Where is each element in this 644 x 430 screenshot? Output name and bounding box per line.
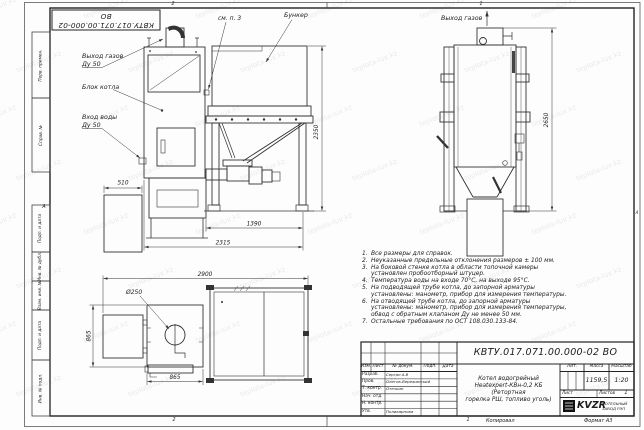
dim-865-left: 865 (87, 330, 93, 341)
sheet-label: Лист (562, 390, 573, 398)
col-header-data: Дата (439, 364, 457, 372)
signature-name (386, 401, 422, 408)
signature-name: Отечкин (386, 386, 422, 393)
dim-865-bottom: 865 (169, 375, 180, 381)
signature-name (386, 394, 422, 401)
gas-outlet-du-label: Ду 50 (81, 61, 101, 68)
water-inlet-du-label: Ду 50 (81, 122, 101, 129)
col-header-list: Лист (371, 364, 385, 372)
feeder-housing (227, 166, 249, 181)
drawing-sheet: teplota-lux.kzteplota-lux.kzteplota-lux.… (0, 0, 644, 430)
boiler-side-body (454, 45, 516, 167)
zone-letter-left: А (40, 204, 48, 210)
dim-2315: 2315 (216, 241, 231, 247)
water-inlet-fitting (139, 158, 146, 164)
signature-name: Поликарпова (386, 409, 422, 416)
bunker-box (212, 46, 307, 106)
water-inlet-label: Вход воды (82, 114, 117, 121)
see-note-label: см. п. 3 (218, 15, 241, 22)
auger-plan (148, 365, 193, 373)
margin-box-podp-data-1: Подп. и дата (32, 205, 50, 252)
aux-box (104, 195, 142, 252)
format-label: Формат А3 (584, 418, 612, 424)
dim-510: 510 (117, 181, 128, 187)
signature-role: Н. контр. (362, 401, 384, 408)
plan-view-linework (103, 285, 312, 383)
sheets-label: Листов (599, 390, 615, 398)
auger-tube (206, 169, 227, 180)
hopper-funnel (243, 123, 305, 163)
signature-name: Олегов-Вережинский (386, 379, 422, 386)
note-item: 2.Неуказанные предельные отклонения разм… (362, 258, 577, 265)
ash-bin (467, 199, 503, 256)
boiler-block-label: Блок котла (82, 84, 119, 91)
margin-box-sprav-n: Справ. № (32, 98, 50, 172)
note-item: 1.Все размеры для справок. (362, 251, 577, 258)
gas-outlet-label: Выход газов (82, 53, 124, 60)
margin-box-vzam-inv: Взам. инв. № (32, 281, 50, 310)
margin-box-inv-podl: Инв. № подл. (32, 360, 50, 416)
bunker-label: Бункер (284, 12, 308, 19)
margin-box-podp-data-2: Подп. и дата (32, 310, 50, 360)
scale-value: 1:20 (609, 372, 634, 391)
title-block-doc-number: КВТУ.017.071.00.000-02 ВО (457, 342, 634, 364)
mass-value: 1159,5 (584, 372, 609, 391)
col-header-podp: Подп. (421, 364, 439, 372)
side-gas-outlet-label: Выход газов (441, 15, 483, 22)
lit-label: Лит. (560, 364, 584, 372)
signature-role: Утв. (362, 409, 384, 416)
copied-label: Копировал (486, 418, 515, 424)
note-item: 3.На боковой стенке котла в области топо… (362, 265, 577, 279)
dim-2650: 2650 (544, 112, 550, 127)
corner-stamp-number: КВТУ.017.071.00.000-02 ВО (52, 10, 160, 30)
aux-box-plan (103, 315, 143, 358)
dimension-lines (82, 11, 557, 385)
dim-2900: 2900 (198, 272, 213, 278)
dim-1390: 1390 (247, 222, 262, 228)
boiler-body (144, 47, 205, 178)
note-item: 4.Температура воды на входе 70°С, на вых… (362, 278, 577, 285)
zone-number-bottom-left: 2 (170, 418, 178, 423)
product-designation: Котел водогрейный Heatexpert-КВн-0,2 КБ … (458, 364, 559, 416)
dim-2350: 2350 (314, 124, 320, 139)
zone-number-top-left: 2 (169, 2, 177, 7)
flue-duct (168, 26, 185, 38)
technical-notes: 1.Все размеры для справок. 2.Неуказанные… (362, 251, 577, 326)
note-item: 7.Остальные требования по ОСТ 108.030.13… (362, 319, 577, 326)
col-header-izm: Изм. (361, 364, 371, 372)
ash-box (149, 178, 206, 218)
side-view-linework (437, 28, 530, 256)
boiler-plan (210, 288, 308, 380)
signature-role: Разраб. (362, 372, 384, 379)
zone-number-top-right: 1 (477, 2, 485, 7)
lower-door (157, 128, 195, 166)
scale-label: Масштаб (609, 364, 634, 372)
note-item: 6.На отводящей трубе котла, до запорной … (362, 299, 577, 319)
dim-d250: Ø250 (125, 289, 142, 296)
margin-box-perv-primen: Перв. примен. (32, 32, 50, 98)
front-view-linework (104, 26, 314, 252)
margin-box-inv-dubl: Инв. № дубл. (32, 252, 50, 281)
signature-name: Серган А.В (386, 372, 422, 379)
zone-letter-right: А (635, 210, 640, 215)
zone-number-bottom-right: 1 (464, 418, 472, 423)
mass-label: Масса (584, 364, 609, 372)
note-item: 5.На подводящей трубе котла, до запорной… (362, 285, 577, 299)
sheets-value: 1 (620, 390, 632, 398)
chimney-side (477, 28, 503, 45)
motor (249, 167, 262, 184)
signature-role: Т. контр. (362, 386, 384, 393)
col-header-doc: № докум. (385, 364, 421, 372)
company-name: КОТЕЛЬНЫЙ ЗАВОД РЭП (602, 401, 627, 411)
